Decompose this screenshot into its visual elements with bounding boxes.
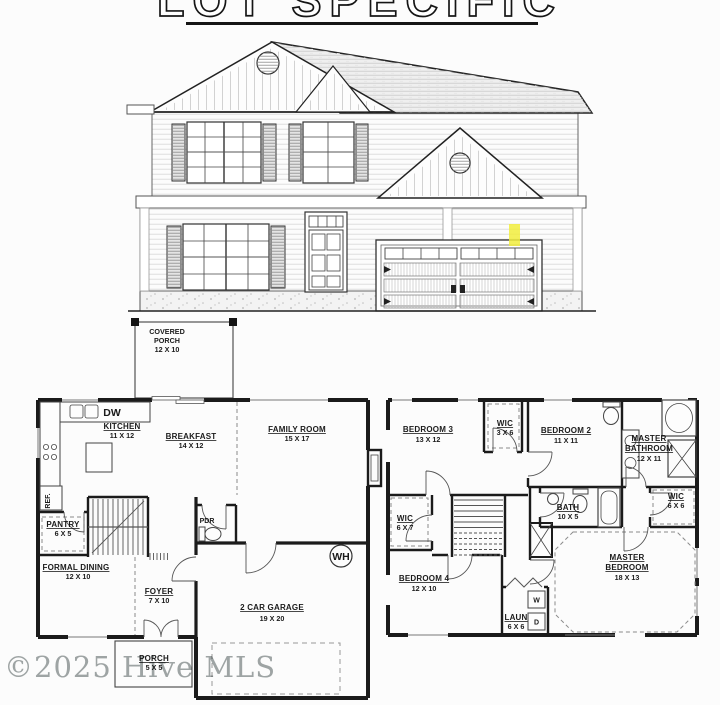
svg-text:WH: WH <box>332 551 350 563</box>
svg-text:3 X 6: 3 X 6 <box>497 428 514 437</box>
svg-text:12 X 11: 12 X 11 <box>637 454 661 463</box>
stairs-first-floor <box>88 499 168 560</box>
wic3-label: WIC <box>497 419 513 428</box>
washer-label: W <box>533 598 540 605</box>
svg-text:11 X 12: 11 X 12 <box>110 431 134 440</box>
svg-text:14 X 12: 14 X 12 <box>179 441 204 450</box>
svg-text:BEDROOM: BEDROOM <box>605 563 648 572</box>
eave-return <box>127 105 154 114</box>
upstairs-window-left <box>172 122 276 183</box>
svg-text:7 X 10: 7 X 10 <box>149 596 170 605</box>
svg-text:6 X 5: 6 X 5 <box>55 529 72 538</box>
bath-label: BATH <box>557 503 579 512</box>
svg-text:13 X 12: 13 X 12 <box>416 435 441 444</box>
svg-text:6 X 7: 6 X 7 <box>397 523 414 532</box>
svg-text:PORCH: PORCH <box>154 336 180 345</box>
floor-plan-sheet: LOT SPECIFIC <box>0 0 720 705</box>
house-front-elevation <box>127 42 596 311</box>
powder-room-toilet <box>199 527 221 541</box>
front-entry-door <box>305 212 347 292</box>
breakfast-label: BREAKFAST <box>166 432 217 441</box>
first-floor-plan: COVERED PORCH 12 X 10 <box>38 318 381 698</box>
covered-porch-label: COVERED <box>149 327 185 336</box>
bifold-door <box>506 578 542 587</box>
wic4-label: WIC <box>397 514 413 523</box>
master-tub <box>662 400 696 436</box>
wic-master-label: WIC <box>668 492 684 501</box>
svg-text:12 X 10: 12 X 10 <box>412 584 437 593</box>
svg-text:11 X 11: 11 X 11 <box>554 436 578 445</box>
mls-watermark: ©2025 Hive MLS <box>4 650 276 684</box>
bedroom3-label: BEDROOM 3 <box>403 425 454 434</box>
powder-room-label: PDR <box>200 518 215 525</box>
garage-door <box>376 240 542 311</box>
svg-text:6 X 6: 6 X 6 <box>668 501 685 510</box>
formal-dining-label: FORMAL DINING <box>43 563 110 572</box>
foyer-label: FOYER <box>145 587 174 596</box>
second-floor-plan: W D BEDROOM 3 13 X 12 WIC 3 X 6 BEDR <box>388 400 697 635</box>
kitchen-island <box>86 443 112 472</box>
kitchen-label: KITCHEN <box>104 422 141 431</box>
laundry-label: LAUN <box>504 613 527 622</box>
svg-text:19 X 20: 19 X 20 <box>260 614 285 623</box>
covered-porch: COVERED PORCH 12 X 10 <box>131 318 237 398</box>
upstairs-window-right <box>289 122 368 183</box>
kitchen-counters <box>40 402 150 510</box>
first-floor-labels: KITCHEN 11 X 12 BREAKFAST 14 X 12 FAMILY… <box>43 422 326 623</box>
bedroom2-label: BEDROOM 2 <box>541 426 592 435</box>
svg-text:12 X 10: 12 X 10 <box>66 572 91 581</box>
svg-text:15 X 17: 15 X 17 <box>285 434 310 443</box>
svg-text:BATHROOM: BATHROOM <box>625 444 673 453</box>
svg-text:12 X 10: 12 X 10 <box>155 345 180 354</box>
svg-text:6 X 6: 6 X 6 <box>508 622 525 631</box>
svg-text:10 X 5: 10 X 5 <box>558 512 579 521</box>
slider-door <box>152 397 180 401</box>
refrigerator-label: REF. <box>45 493 52 508</box>
dishwasher-label: DW <box>103 407 121 419</box>
architectural-drawing: COVERED PORCH 12 X 10 <box>0 0 720 705</box>
water-heater: WH <box>330 545 352 567</box>
svg-text:18 X 13: 18 X 13 <box>615 573 640 582</box>
dryer-label: D <box>534 620 539 627</box>
bedroom4-label: BEDROOM 4 <box>399 574 450 583</box>
family-room-label: FAMILY ROOM <box>268 425 326 434</box>
master-bedroom-label: MASTER <box>610 553 645 562</box>
master-bathroom-label: MASTER <box>632 434 667 443</box>
yellow-highlight-mark <box>509 224 520 246</box>
downstairs-window <box>167 224 285 290</box>
pantry-label: PANTRY <box>46 520 80 529</box>
garage-label: 2 CAR GARAGE <box>240 603 304 612</box>
stairs-second-floor <box>454 500 503 555</box>
sheet-title-underline <box>186 22 538 25</box>
tray-ceiling <box>555 532 695 632</box>
